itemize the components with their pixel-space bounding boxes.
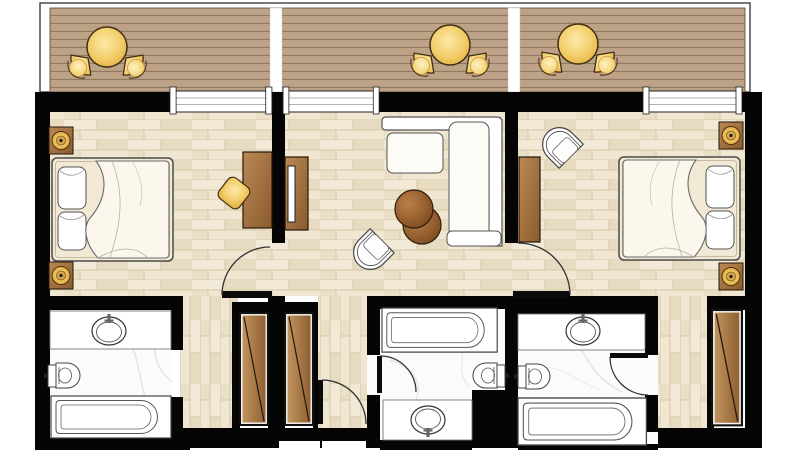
wall-mid-bath-chunk bbox=[472, 390, 505, 448]
lamp-bulb bbox=[59, 274, 62, 277]
entry-door-leaf bbox=[318, 380, 323, 424]
window-living-room bbox=[283, 87, 379, 114]
toilet-bowl bbox=[526, 364, 550, 389]
window-end-cap bbox=[283, 87, 289, 114]
wall-living-bottom bbox=[367, 296, 505, 309]
right-corridor-floor bbox=[658, 296, 707, 428]
wall-left-exterior bbox=[35, 92, 50, 448]
wall-right-wardrobe-top bbox=[707, 296, 745, 310]
coffee-table-front bbox=[395, 190, 433, 228]
right-nightstand-bottom bbox=[719, 263, 743, 290]
balcony bbox=[40, 3, 750, 92]
pillow bbox=[58, 167, 86, 209]
window-end-cap bbox=[736, 87, 742, 114]
tap-handle bbox=[424, 429, 433, 431]
wall-right-exterior bbox=[745, 92, 762, 448]
window-right-bedroom bbox=[643, 87, 742, 114]
middle-bath-door-leaf bbox=[377, 356, 382, 393]
pillow bbox=[706, 166, 734, 208]
right-bed bbox=[619, 157, 740, 260]
wall-bottom-f bbox=[658, 428, 762, 448]
balcony-deck bbox=[50, 8, 745, 92]
middle-bath-tub bbox=[382, 308, 497, 352]
wall-right-bath-right-top bbox=[645, 314, 658, 355]
middle-bath-toilet bbox=[473, 363, 509, 388]
wall-left-bedroom-living bbox=[272, 92, 285, 243]
balcony-divider bbox=[508, 8, 520, 92]
wall-living-right-bedroom bbox=[505, 92, 518, 243]
window-end-cap bbox=[643, 87, 649, 114]
window-frame bbox=[285, 91, 377, 112]
balcony-divider bbox=[270, 8, 282, 92]
wall-left-bath-right-bottom bbox=[171, 397, 183, 438]
window-frame bbox=[172, 91, 270, 112]
left-bath-tub bbox=[51, 396, 171, 438]
toilet-bowl bbox=[56, 363, 80, 388]
right-dresser bbox=[519, 157, 540, 242]
left-corridor-floor bbox=[180, 296, 238, 428]
right-wardrobe bbox=[712, 310, 742, 425]
wall-above-left-bathroom bbox=[35, 296, 183, 310]
patio-table bbox=[430, 25, 470, 65]
middle-corridor-floor bbox=[318, 296, 367, 428]
right-bath-door-leaf bbox=[610, 353, 648, 358]
toilet-bowl bbox=[473, 363, 497, 388]
left-wardrobe-2 bbox=[285, 313, 313, 425]
window-end-cap bbox=[266, 87, 272, 114]
wall-bottom-a bbox=[35, 438, 190, 450]
right-nightstand-top bbox=[719, 122, 743, 149]
floor-plan bbox=[0, 0, 800, 450]
sofa-armrest bbox=[447, 231, 501, 246]
toilet-tank bbox=[48, 365, 56, 387]
lamp-bulb bbox=[729, 134, 732, 137]
wall-mid-bath-left-top bbox=[367, 296, 380, 355]
lamp-bulb bbox=[729, 275, 732, 278]
wall-left-bath-right-top bbox=[171, 296, 183, 350]
right-doorway-floor bbox=[505, 243, 518, 296]
lamp-bulb bbox=[59, 139, 62, 142]
floor-plan-canvas bbox=[0, 0, 800, 450]
wall-mid-column bbox=[505, 296, 518, 448]
flush-button bbox=[514, 375, 517, 379]
left-nightstand-top bbox=[49, 127, 73, 154]
wall-wardrobe-left bbox=[232, 302, 240, 428]
left-bed bbox=[52, 158, 173, 261]
toilet-tank bbox=[518, 366, 526, 388]
flush-button bbox=[44, 374, 47, 378]
flush-button bbox=[506, 374, 509, 378]
sofa-seat-right bbox=[449, 122, 489, 238]
left-bath-toilet bbox=[44, 363, 80, 388]
wall-wardrobe-post bbox=[268, 296, 285, 428]
left-bedroom-door-leaf bbox=[222, 291, 272, 298]
right-bath-toilet bbox=[514, 364, 550, 389]
tap-handle bbox=[105, 320, 114, 322]
right-bath-tub bbox=[518, 398, 646, 445]
toilet-tank bbox=[497, 365, 505, 387]
wall-bottom-d bbox=[380, 440, 472, 450]
window-left-bedroom bbox=[170, 87, 272, 114]
right-bedroom-door-leaf bbox=[513, 291, 570, 298]
patio-table bbox=[87, 27, 127, 67]
left-wardrobe-1 bbox=[240, 313, 268, 425]
tv-screen bbox=[288, 166, 295, 222]
left-nightstand-bottom bbox=[49, 262, 73, 289]
entry-threshold-notch bbox=[279, 441, 320, 450]
wall-bottom-c bbox=[366, 428, 380, 448]
window-end-cap bbox=[373, 87, 379, 114]
patio-table bbox=[558, 24, 598, 64]
sofa-seat-top bbox=[387, 133, 443, 173]
window-frame bbox=[645, 91, 740, 112]
wall-top-left bbox=[35, 92, 172, 112]
tap-handle bbox=[579, 320, 588, 322]
wall-above-right-bathroom bbox=[518, 296, 658, 314]
wall-bottom-entry bbox=[322, 428, 366, 441]
window-end-cap bbox=[170, 87, 176, 114]
left-doorway-floor bbox=[272, 243, 285, 296]
